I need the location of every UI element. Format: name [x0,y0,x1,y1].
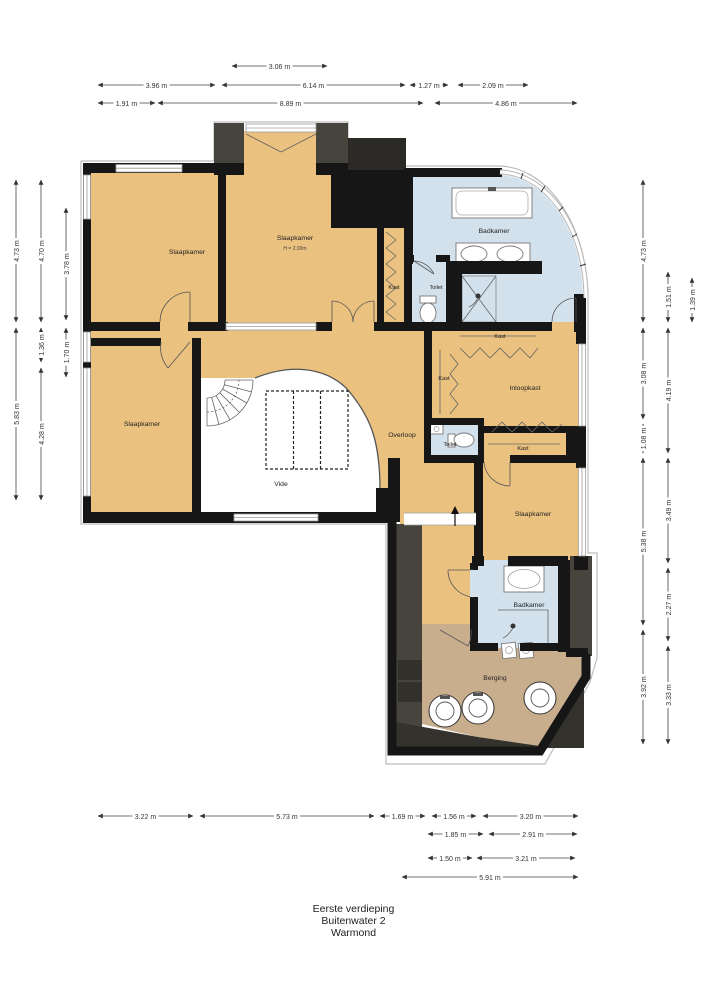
room-label-slaapkamer-2: Slaapkamer [277,235,314,242]
svg-text:5.91 m: 5.91 m [479,875,501,882]
dimension: 2.27 m [664,568,673,641]
corridor-down2-floor [422,520,478,630]
dimension: 6.14 m [222,81,405,90]
window-right-slaapkamer4 [579,468,586,556]
svg-text:4.73 m: 4.73 m [641,240,648,262]
plan-title-city: Warmond [0,927,707,939]
washing-machine-1 [429,695,461,727]
svg-text:3.08 m: 3.08 m [641,363,648,385]
floor-plan-drawing: Slaapkamer Slaapkamer H = 2.00m Badkamer… [0,0,707,1000]
svg-text:3.20 m: 3.20 m [520,814,542,821]
dimension: 3.92 m [639,630,648,744]
room-label-toilet-1: Toilet [429,285,443,291]
svg-text:2.91 m: 2.91 m [522,832,544,839]
window-left-1 [84,175,91,219]
plan-title-address: Buitenwater 2 [0,915,707,927]
svg-text:3.33 m: 3.33 m [666,684,673,706]
svg-text:6.14 m: 6.14 m [303,83,325,90]
dimension: 2.91 m [489,830,577,839]
svg-text:1.51 m: 1.51 m [666,286,673,308]
svg-text:5.38 m: 5.38 m [641,531,648,553]
room-label-kast-1: Kast [388,285,400,291]
svg-text:1.39 m: 1.39 m [690,289,697,311]
kast-1-floor [382,225,406,327]
room-label-slaapkamer-1: Slaapkamer [169,249,206,256]
dimensions-bottom: 3.22 m 5.73 m 1.69 m 1.56 m 3.20 m 1.85 … [98,812,578,882]
dimension: 2.09 m [458,81,528,90]
washing-machine-3 [524,682,556,714]
room-label-kast-2: Kast [494,334,506,340]
svg-text:4.73 m: 4.73 m [14,240,21,262]
dimension: 4.28 m [37,368,46,500]
svg-text:4.19 m: 4.19 m [666,380,673,402]
dimension: 8.89 m [158,99,423,108]
window-top-slaapkamer1 [116,165,182,173]
dimension: 3.08 m [639,328,648,419]
room-label-slaapkamer-3: Slaapkamer [124,421,161,428]
svg-text:3.22 m: 3.22 m [135,814,157,821]
dimension: 5.73 m [200,812,374,821]
svg-text:2.09 m: 2.09 m [482,83,504,90]
room-label-badkamer-2: Badkamer [514,602,546,609]
svg-text:3.78 m: 3.78 m [64,253,71,275]
dimension: 1.70 m [62,328,71,377]
dimension: 3.78 m [62,208,71,320]
dimension: 4.86 m [435,99,577,108]
svg-text:3.06 m: 3.06 m [269,64,291,71]
window-vide-bottom [234,514,318,521]
dimension: 1.69 m [380,812,425,821]
dimension: 1.39 m [688,278,697,322]
window-left-2 [84,332,91,362]
dimension: 1.85 m [428,830,483,839]
room-label-slaapkamer-4: Slaapkamer [515,511,552,518]
dimension: 4.73 m [12,180,21,322]
dimension: 3.49 m [664,458,673,563]
svg-text:3.21 m: 3.21 m [515,856,537,863]
bathtub-2 [504,566,544,592]
window-dormer [246,124,316,132]
room-label-kast-4: Kast [517,446,529,452]
dimension: 3.20 m [483,812,578,821]
window-left-3 [84,368,91,496]
dimension: 5.38 m [639,458,648,625]
dimension: 5.91 m [402,873,578,882]
svg-text:1.08 m: 1.08 m [641,428,648,450]
svg-text:1.69 m: 1.69 m [392,814,414,821]
dimension: 1.08 m [639,424,648,453]
room-label-berging: Berging [483,675,507,682]
dimensions-left: 4.73 m 5.83 m 4.70 m 1.36 m 4.28 m 3.78 … [12,180,71,500]
dimension: 3.96 m [98,81,215,90]
room-label-slaapkamer-2-height: H = 2.00m [283,246,306,252]
svg-text:1.56 m: 1.56 m [443,814,465,821]
dimension: 1.56 m [432,812,476,821]
room-label-kast-3: Kast [438,376,450,382]
dimension: 1.27 m [410,81,448,90]
window-right-inloopkast [579,344,586,426]
dimension: 3.33 m [664,646,673,744]
dimension: 3.22 m [98,812,193,821]
plan-title: Eerste verdieping Buitenwater 2 Warmond [0,903,707,939]
dimension: 4.19 m [664,328,673,453]
room-label-vide: Vide [274,481,288,488]
svg-text:1.27 m: 1.27 m [418,83,440,90]
svg-text:1.91 m: 1.91 m [116,101,138,108]
svg-text:4.28 m: 4.28 m [39,423,46,445]
bathtub-1 [452,187,532,218]
svg-text:3.96 m: 3.96 m [146,83,168,90]
dimension: 4.73 m [639,180,648,322]
room-slaapkamer-1-floor [88,168,222,326]
dimension: 1.50 m [428,854,472,863]
room-label-inloopkast: Inloopkast [510,385,541,392]
dimensions-right: 4.73 m 3.08 m 1.08 m 5.38 m 3.92 m 1.51 … [639,180,697,744]
room-label-overloop: Overloop [388,432,416,439]
dimension: 5.83 m [12,328,21,500]
svg-text:1.50 m: 1.50 m [439,856,461,863]
svg-text:2.27 m: 2.27 m [666,594,673,616]
room-slaapkamer-3-floor [88,340,196,518]
svg-text:5.83 m: 5.83 m [14,403,21,425]
floorplan-page: Slaapkamer Slaapkamer H = 2.00m Badkamer… [0,0,707,1000]
washing-machine-2 [462,692,494,724]
dimension: 3.21 m [477,854,575,863]
window-interior-vide [226,323,316,330]
svg-text:1.70 m: 1.70 m [64,342,71,364]
svg-text:3.92 m: 3.92 m [641,676,648,698]
svg-text:4.86 m: 4.86 m [495,101,517,108]
dimension: 3.06 m [232,62,327,71]
dimension: 4.70 m [37,180,46,322]
dimensions-top: 3.06 m 3.96 m 6.14 m 1.27 m 2.09 m 1.91 … [98,62,577,108]
svg-text:5.73 m: 5.73 m [276,814,298,821]
svg-text:1.85 m: 1.85 m [445,832,467,839]
toilet-1-fixture [420,296,436,323]
plan-title-floor: Eerste verdieping [0,903,707,915]
svg-text:4.70 m: 4.70 m [39,240,46,262]
dimension: 1.51 m [664,272,673,322]
room-label-toilet-2: Toilet [443,442,457,448]
dimension: 1.91 m [98,99,155,108]
svg-text:8.89 m: 8.89 m [280,101,302,108]
room-label-badkamer-1: Badkamer [479,228,511,235]
svg-text:1.36 m: 1.36 m [39,334,46,356]
dimension: 1.36 m [37,328,46,362]
svg-text:3.49 m: 3.49 m [666,500,673,522]
